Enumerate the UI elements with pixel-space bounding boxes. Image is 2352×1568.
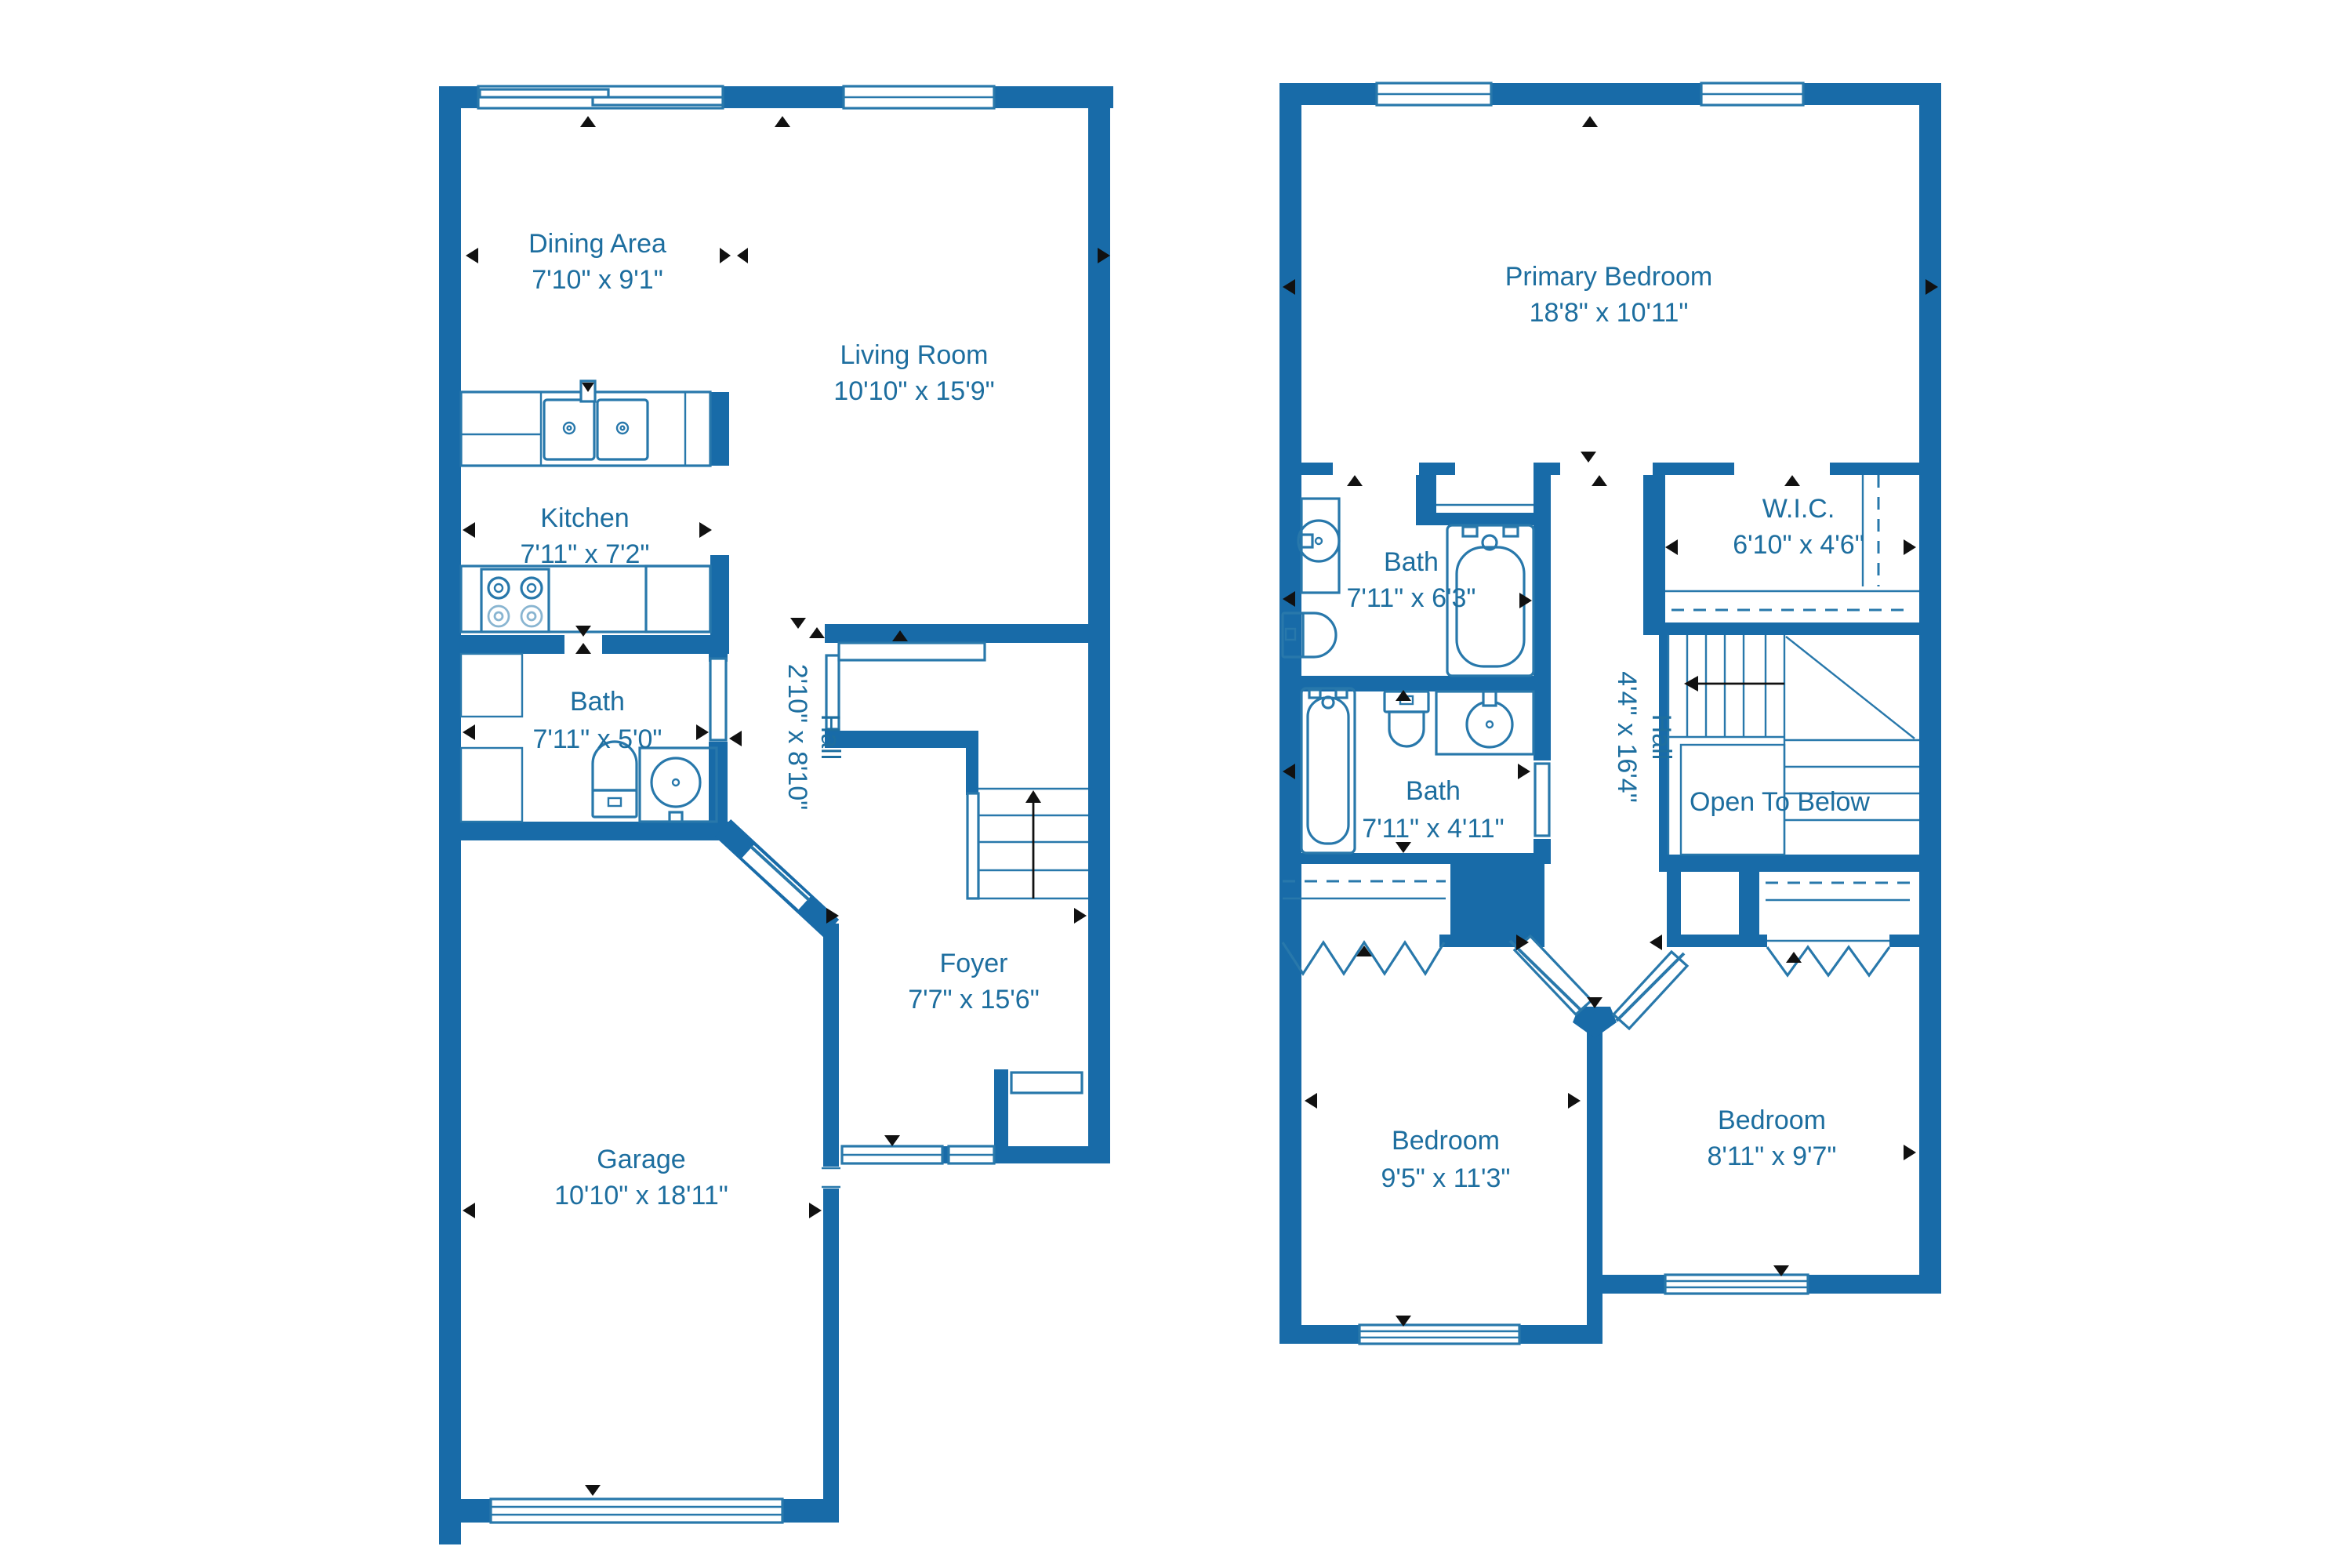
bedroom-left-window [1359,1325,1519,1344]
primary-window-left [1377,83,1491,105]
bath-door-leaf [710,659,726,740]
bath-cabinets [461,654,522,822]
room-dims-primary: 18'8" x 10'11" [1530,298,1689,328]
room-label-wic: W.I.C. [1762,494,1835,524]
room-label-bath-bottom: Bath [1406,776,1461,806]
room-label-bath-top: Bath [1384,547,1439,577]
floor1-plan: Dining Area 7'10" x 9'1" Living Room 10'… [439,86,1113,1544]
room-dims-bedroom-left: 9'5" x 11'3" [1381,1163,1510,1193]
bath2-sink [1436,691,1534,754]
room-dims-dining: 7'10" x 9'1" [532,265,663,295]
bedroom-right-door [1613,952,1687,1029]
room-dims-garage: 10'10" x 18'11" [554,1181,728,1210]
room-label-bedroom-right: Bedroom [1718,1105,1826,1135]
room-label-living: Living Room [840,340,989,370]
room-label-hall1: Hall [815,714,845,760]
primary-window-right [1701,83,1803,105]
sliding-door [478,86,723,108]
bedroom-left-closet [1283,881,1446,974]
label-open-to-below: Open To Below [1690,787,1870,817]
bedroom-right-window [1665,1275,1808,1294]
living-window [844,86,994,108]
room-label-kitchen: Kitchen [540,503,629,533]
floor1-labels: Dining Area 7'10" x 9'1" Living Room 10'… [520,229,1039,1210]
foyer-window [949,1146,994,1163]
room-dims-living: 10'10" x 15'9" [833,376,994,406]
room-label-garage: Garage [597,1145,685,1174]
room-dims-kitchen: 7'11" x 7'2" [520,539,649,569]
bedroom-left-door [1510,936,1592,1014]
room-dims-hall1: 2'10" x 8'10" [782,664,812,810]
room-label-primary: Primary Bedroom [1505,262,1713,292]
garage-entry-door [822,1167,840,1189]
room-label-bedroom-left: Bedroom [1392,1126,1500,1156]
bath2-tub [1301,688,1355,853]
front-door [842,1146,942,1163]
stairs-floor2 [1668,635,1919,855]
room-dims-wic: 6'10" x 4'6" [1733,530,1864,560]
kitchen-counter [461,392,710,466]
room-label-dining: Dining Area [528,229,666,259]
floor2-labels: Primary Bedroom 18'8" x 10'11" Bath 7'11… [1346,262,1870,1193]
hall-closet-shelf [839,643,985,660]
bath-sink [640,748,717,822]
stair-rail [967,793,978,898]
kitchen-stove-counter [461,566,710,632]
floorplan-canvas: Dining Area 7'10" x 9'1" Living Room 10'… [0,0,2352,1568]
bath2-door-leaf [1535,764,1549,836]
bath1-sink [1298,499,1339,593]
room-dims-bedroom-right: 8'11" x 9'7" [1707,1142,1836,1171]
garage-door [491,1499,782,1523]
room-dims-bath-bottom: 7'11" x 4'11" [1362,814,1504,844]
foyer-closet-shelf [1011,1073,1082,1093]
room-label-hall2: Hall [1646,714,1676,760]
floor2-plan: Primary Bedroom 18'8" x 10'11" Bath 7'11… [1279,83,1941,1344]
diagonal-door-opening [748,851,804,903]
room-dims-hall2: 4'4" x 16'4" [1612,671,1642,803]
room-label-bath1: Bath [570,687,625,717]
room-dims-bath-top: 7'11" x 6'3" [1346,583,1475,613]
room-dims-foyer: 7'7" x 15'6" [908,985,1040,1014]
stairs-floor1 [967,789,1088,898]
room-label-foyer: Foyer [940,949,1008,978]
room-dims-bath1: 7'11" x 5'0" [532,724,662,754]
floor1-openings [478,86,994,1523]
